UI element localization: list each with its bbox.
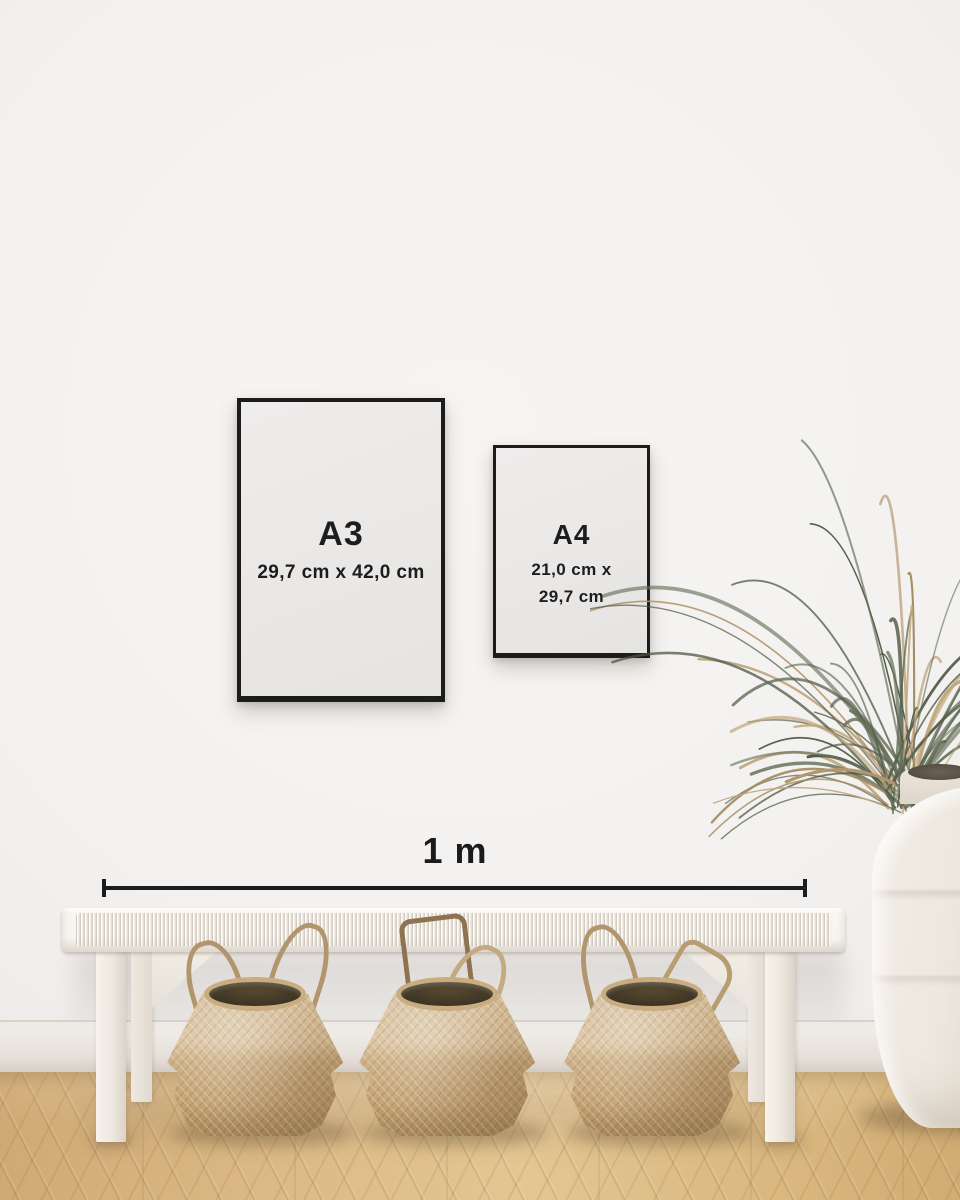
scale-ruler-line [102, 886, 807, 890]
plant [590, 288, 960, 848]
scale-label: 1 m [422, 830, 487, 872]
size-guide-scene: A3 29,7 cm x 42,0 cm A4 21,0 cm x 29,7 c… [0, 0, 960, 1200]
frame-a3-dimensions: 29,7 cm x 42,0 cm [257, 562, 424, 584]
frame-a3: A3 29,7 cm x 42,0 cm [237, 398, 445, 702]
basket-right-opening [606, 982, 698, 1006]
bench-leg-front-left [96, 950, 126, 1142]
plant-fronds-svg [590, 288, 960, 848]
bench-leg-rear-left [131, 950, 152, 1102]
basket-left-opening [209, 982, 301, 1006]
basket-right [564, 980, 740, 1136]
frame-a3-label: A3 [257, 515, 424, 554]
basket-left [167, 980, 343, 1136]
basket-middle [359, 980, 535, 1136]
bench-leg-front-right [765, 950, 795, 1142]
basket-middle-opening [401, 982, 493, 1006]
frame-a3-content: A3 29,7 cm x 42,0 cm [257, 515, 424, 584]
